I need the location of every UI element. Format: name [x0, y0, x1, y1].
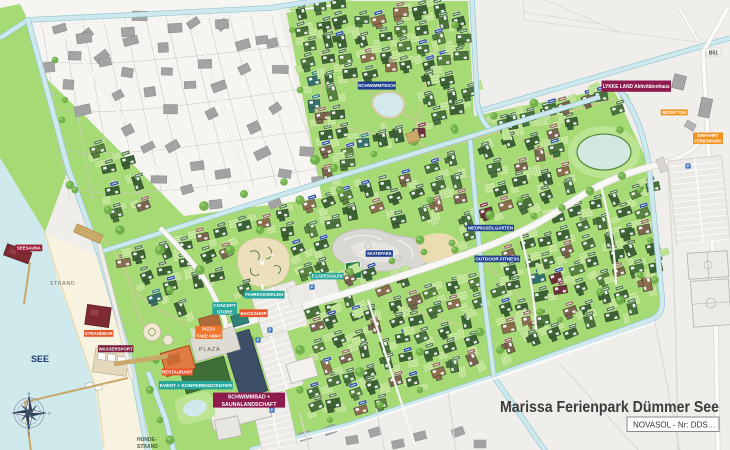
svg-text:SCHWIMMBAD +: SCHWIMMBAD + — [228, 394, 271, 400]
svg-text:O: O — [47, 411, 50, 416]
svg-text:BACKSHOP: BACKSHOP — [240, 311, 266, 316]
svg-text:WASSERSPORT: WASSERSPORT — [99, 346, 133, 351]
svg-text:E-LADESÄULEN: E-LADESÄULEN — [312, 274, 343, 279]
svg-text:NOVASOL - Nr: DDS…: NOVASOL - Nr: DDS… — [633, 421, 716, 430]
svg-text:NIEDRIGSEILGARTEN: NIEDRIGSEILGARTEN — [468, 226, 513, 231]
svg-text:SKATEPARK: SKATEPARK — [367, 251, 392, 256]
svg-text:STRAND: STRAND — [137, 444, 158, 450]
svg-text:N: N — [28, 391, 31, 396]
svg-text:PIZZA: PIZZA — [202, 327, 216, 332]
svg-text:P: P — [311, 285, 314, 290]
svg-text:TAKE AWAY: TAKE AWAY — [197, 333, 222, 338]
svg-text:EINFAHRT: EINFAHRT — [698, 133, 719, 138]
svg-text:RESTAURANT: RESTAURANT — [162, 370, 193, 375]
svg-text:S: S — [28, 431, 31, 436]
svg-text:B51: B51 — [709, 51, 718, 57]
svg-text:EVENT + KONFERENZCENTER: EVENT + KONFERENZCENTER — [160, 383, 233, 389]
svg-text:OUTDOOR FITNESS: OUTDOOR FITNESS — [475, 257, 519, 262]
svg-text:FERIENPARK: FERIENPARK — [695, 139, 722, 144]
svg-text:STRANDBAR: STRANDBAR — [85, 331, 114, 336]
svg-text:P: P — [269, 328, 272, 333]
svg-text:CONCEPT: CONCEPT — [213, 303, 236, 308]
svg-text:HUNDE-: HUNDE- — [137, 437, 157, 443]
svg-text:PLAZA: PLAZA — [199, 347, 220, 353]
svg-text:LYKKE LAND Aktivitätenhaus: LYKKE LAND Aktivitätenhaus — [603, 84, 670, 90]
svg-text:P: P — [687, 164, 690, 169]
svg-text:P: P — [271, 408, 274, 413]
svg-text:SEESAUNA: SEESAUNA — [17, 245, 41, 250]
svg-text:REZEPTION: REZEPTION — [662, 110, 686, 115]
svg-text:STORE: STORE — [217, 309, 233, 314]
svg-text:SCHWIMMTEICH: SCHWIMMTEICH — [358, 83, 396, 88]
svg-text:STRAND: STRAND — [50, 281, 75, 287]
svg-text:Marissa Ferienpark Dümmer See: Marissa Ferienpark Dümmer See — [500, 399, 719, 416]
svg-text:FAHRRADVERLEIH: FAHRRADVERLEIH — [245, 292, 283, 297]
svg-text:P: P — [257, 338, 260, 343]
svg-text:SEE: SEE — [31, 354, 49, 364]
svg-text:SAUNALANDSCHAFT: SAUNALANDSCHAFT — [221, 402, 277, 408]
